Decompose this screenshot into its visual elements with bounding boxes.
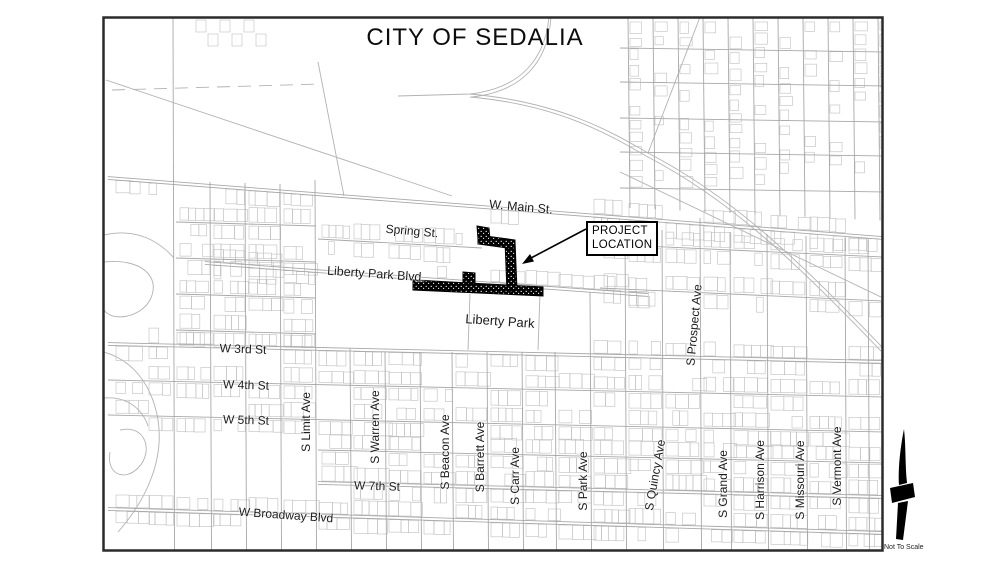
scale-note: Not To Scale bbox=[884, 544, 924, 551]
map-canvas bbox=[0, 0, 1000, 563]
street-label-s-carr-ave: S Carr Ave bbox=[508, 447, 522, 505]
street-label-s-grand-ave: S Grand Ave bbox=[716, 450, 730, 518]
street-label-s-vermont-ave: S Vermont Ave bbox=[830, 426, 844, 505]
street-label-w-5th-st: W 5th St bbox=[223, 412, 269, 428]
street-label-s-harrison-ave: S Harrison Ave bbox=[753, 440, 767, 520]
street-label-s-beacon-ave: S Beacon Ave bbox=[438, 414, 452, 489]
north-arrow-icon bbox=[885, 423, 925, 548]
street-label-s-warren-ave: S Warren Ave bbox=[368, 390, 382, 463]
street-label-s-park-ave: S Park Ave bbox=[576, 451, 590, 510]
street-label-w-4th-st: W 4th St bbox=[223, 377, 269, 393]
street-label-s-barrett-ave: S Barrett Ave bbox=[473, 422, 487, 492]
street-label-s-missouri-ave: S Missouri Ave bbox=[793, 440, 807, 519]
street-label-w-7th-st: W 7th St bbox=[354, 478, 400, 494]
map-layers bbox=[104, 17, 893, 551]
map-page: CITY OF SEDALIA W. Main St. Spring St. L… bbox=[0, 0, 1000, 563]
street-label-s-limit-ave: S Limit Ave bbox=[299, 392, 313, 452]
street-label-w-3rd-st: W 3rd St bbox=[219, 341, 266, 357]
page-title: CITY OF SEDALIA bbox=[340, 24, 610, 52]
project-location-callout: PROJECT LOCATION bbox=[586, 221, 658, 256]
